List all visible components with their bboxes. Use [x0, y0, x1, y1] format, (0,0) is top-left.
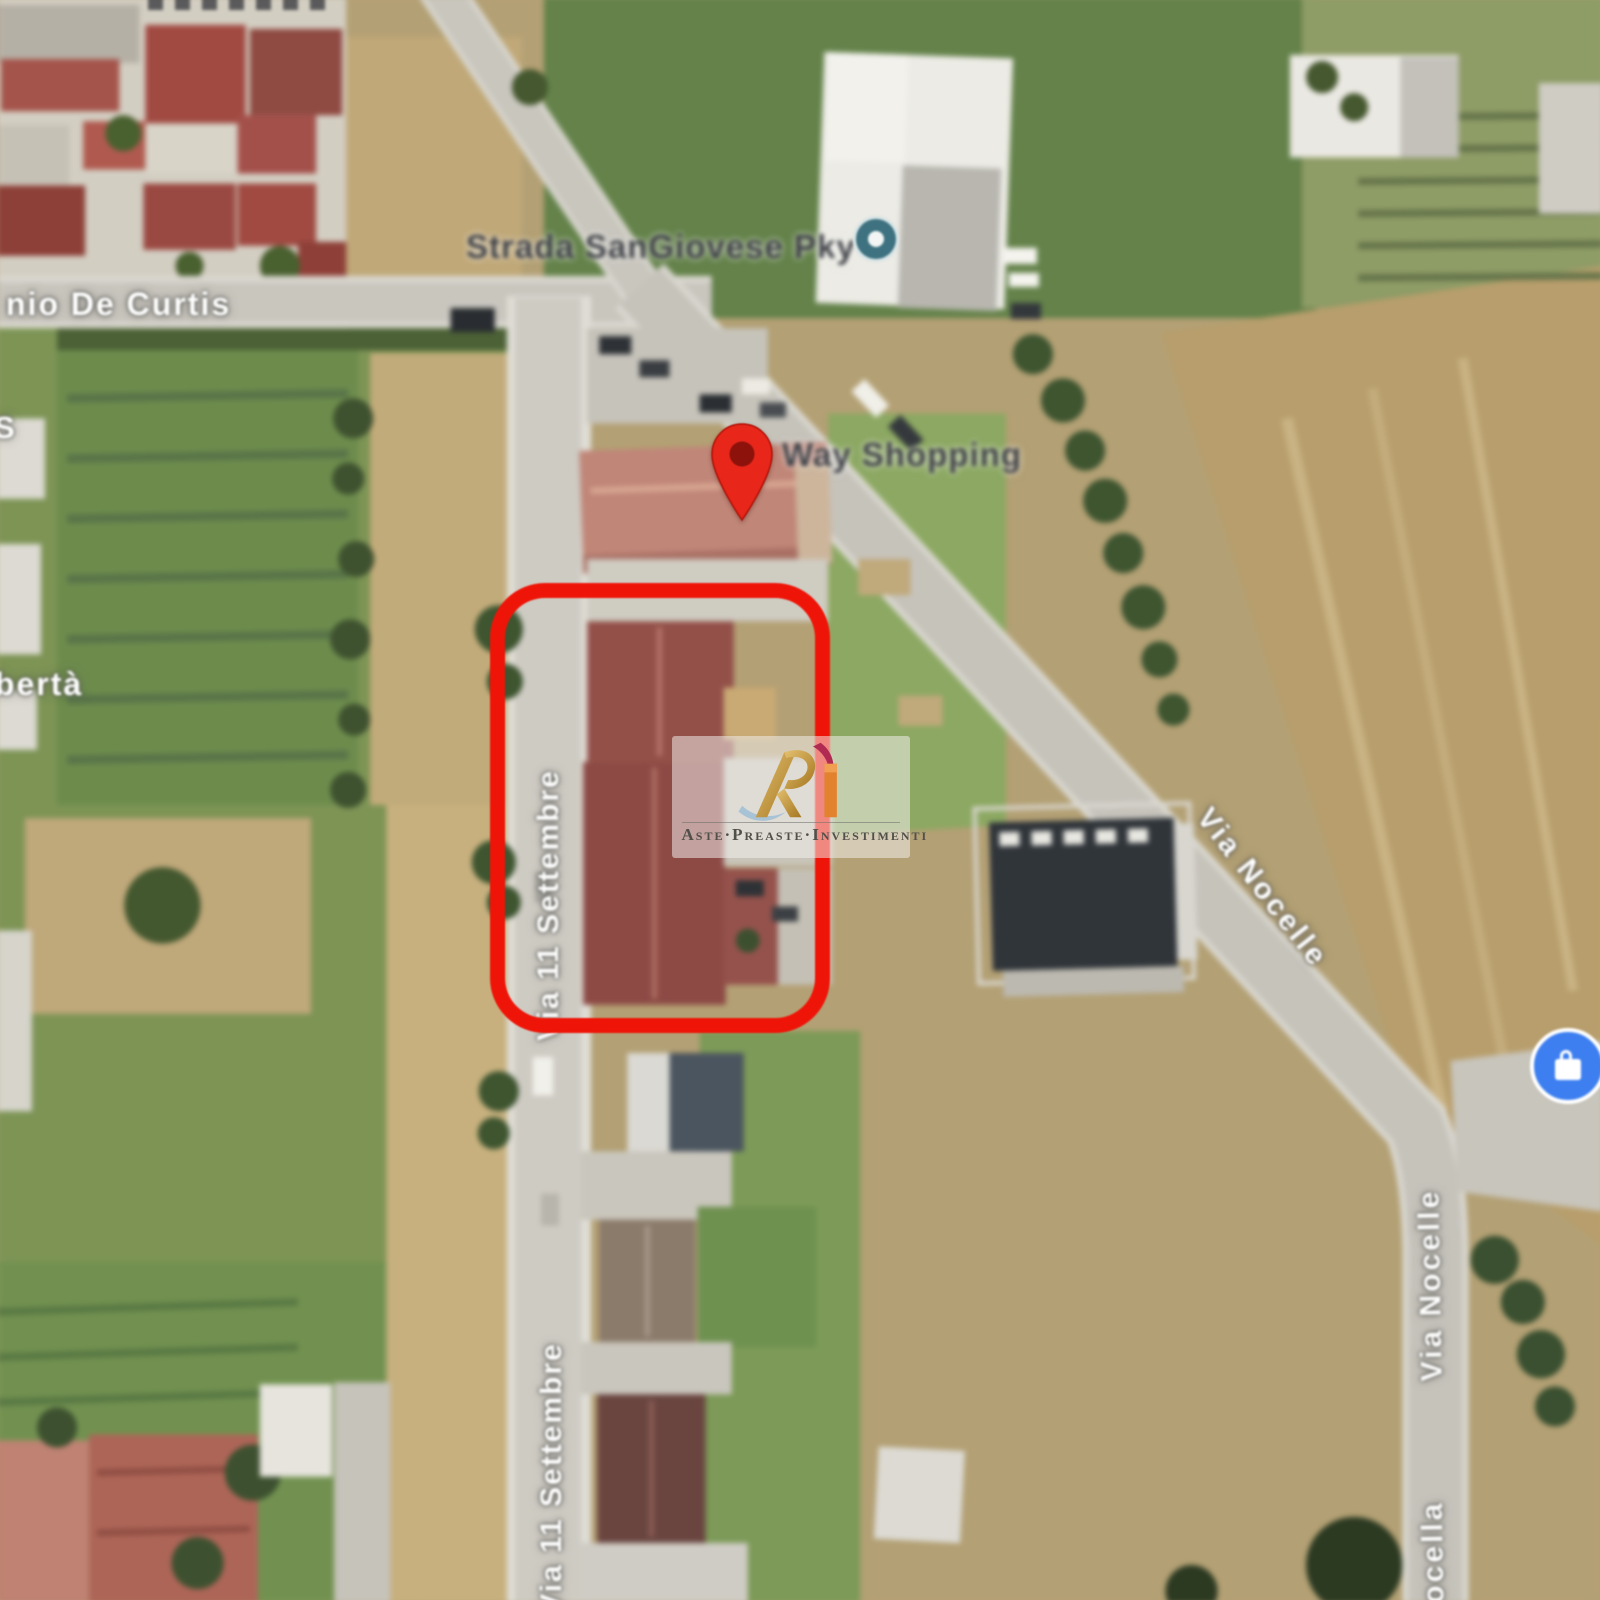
- poi-teal-glyph: [868, 231, 884, 247]
- map-pin-icon[interactable]: [710, 422, 774, 524]
- ri-logo: [727, 738, 855, 822]
- watermark-brand-text: Aste·Preaste·Investimenti: [682, 822, 901, 845]
- warehouse-building: [816, 52, 1013, 311]
- poi-icon-blue-shopping[interactable]: [1530, 1028, 1600, 1104]
- dark-building: [975, 803, 1199, 997]
- partial-label-top-edge: [148, 0, 326, 10]
- shopping-bag-icon: [1555, 1059, 1581, 1080]
- pin-building: [579, 442, 832, 573]
- poi-icon-teal[interactable]: [853, 216, 899, 262]
- map-canvas: Strada SanGiovese Pky Way Shopping nio D…: [0, 0, 1600, 1600]
- watermark: Aste·Preaste·Investimenti: [672, 736, 910, 858]
